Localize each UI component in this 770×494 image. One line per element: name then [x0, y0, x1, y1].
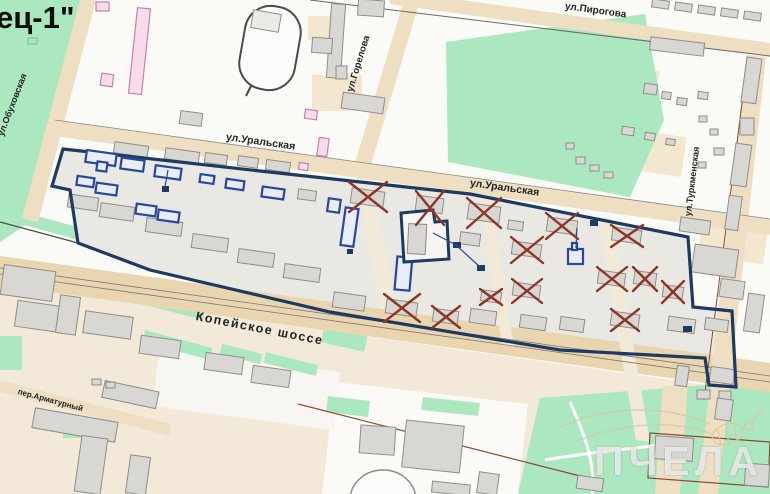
map-graphics: [0, 0, 770, 494]
map-title-fragment: ец-1": [0, 0, 75, 36]
watermark: ПЧЕЛА: [594, 438, 763, 485]
city-map: ец-1" ул.Пирогова ул.Горелова ул.Уральск…: [0, 0, 770, 494]
house-icon: [568, 249, 583, 264]
